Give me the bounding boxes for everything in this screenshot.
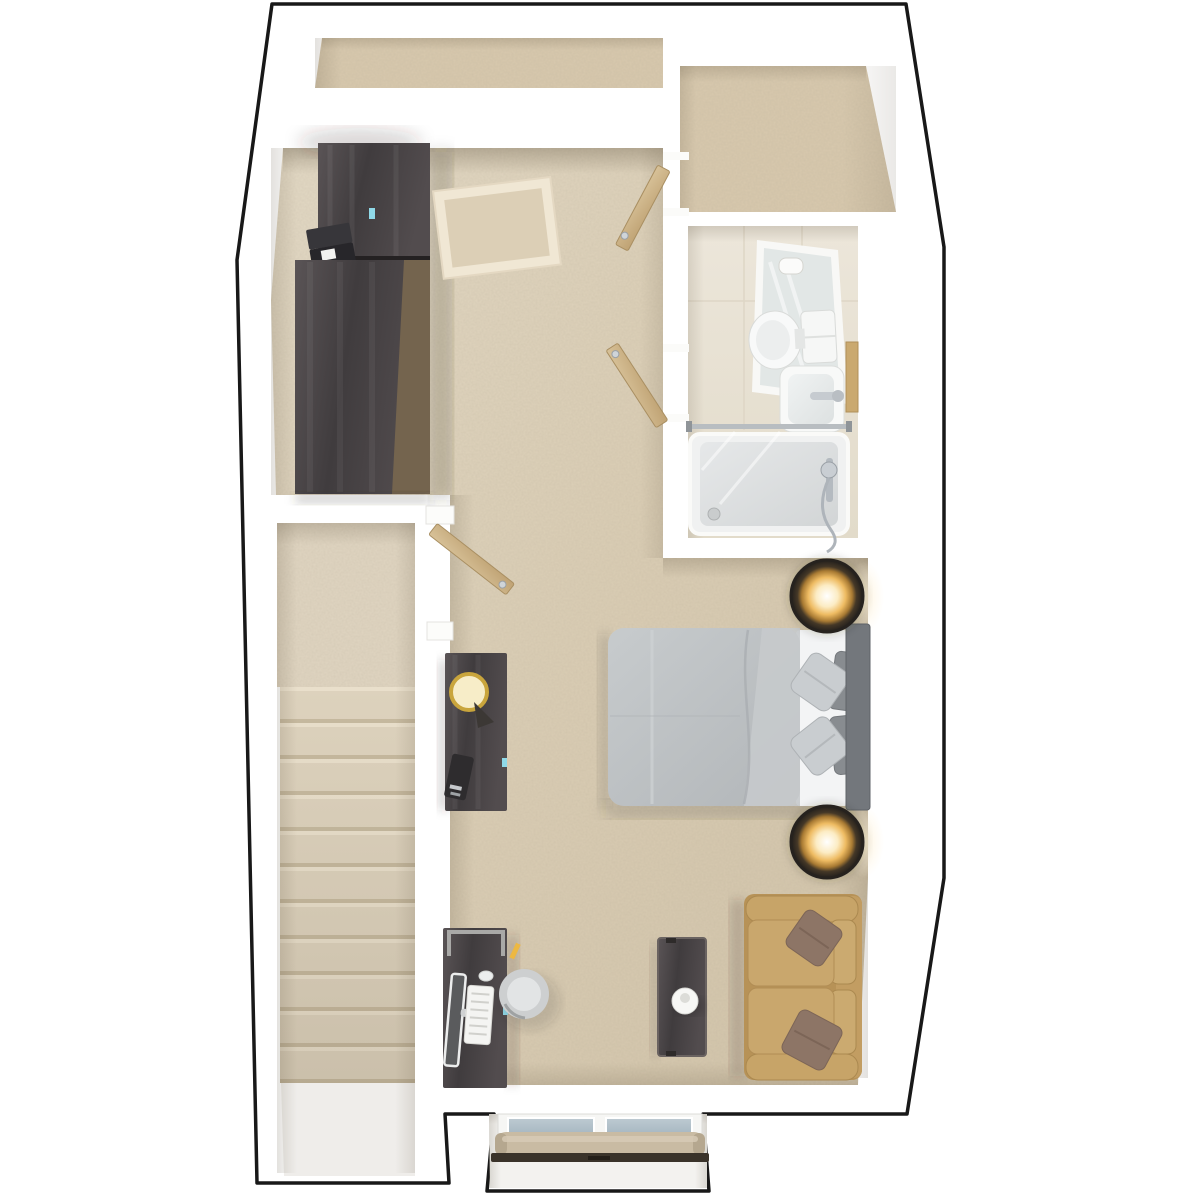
floor-plan-stage	[0, 0, 1200, 1200]
shower-screen	[686, 424, 852, 429]
rail-bracket	[588, 1156, 610, 1160]
loveseat-sofa	[730, 894, 862, 1080]
shower-drain	[708, 508, 720, 520]
roller-curtain	[495, 1132, 705, 1156]
wardrobe-area	[295, 128, 452, 504]
stair-lower-landing	[281, 1083, 415, 1176]
console-handle	[666, 938, 676, 943]
stair-top-shadow	[277, 523, 415, 545]
round-nightstand-bottom	[789, 804, 865, 880]
stair-bottom-shading	[280, 687, 415, 1083]
chair-cushion	[507, 977, 541, 1011]
floor-plan-svg	[0, 0, 1200, 1200]
tag-accent	[502, 758, 507, 767]
console-handle	[666, 1051, 676, 1056]
table-lamp-gold	[451, 674, 487, 710]
curtain-highlight	[502, 1136, 698, 1142]
toilet-roll-holder	[779, 258, 803, 274]
door-jamb	[426, 506, 454, 524]
towel-rail	[846, 342, 858, 412]
stair-upper-landing	[277, 523, 415, 687]
sofa-shadow	[730, 900, 746, 1076]
vase-opening	[680, 993, 690, 1003]
stair-right-shadow	[395, 523, 415, 1173]
tag-accent	[369, 208, 375, 219]
console-table-group	[650, 938, 706, 1056]
screen-bracket	[686, 421, 692, 432]
window-bay	[491, 1114, 709, 1162]
round-nightstand-top	[789, 558, 865, 634]
shower	[686, 421, 852, 552]
shower-valve-knob	[821, 462, 837, 478]
bedside-cabinet-group	[438, 653, 507, 811]
door-jamb	[663, 208, 689, 216]
bed-headboard	[846, 624, 870, 810]
door-jamb	[427, 622, 453, 640]
screen-bracket	[846, 421, 852, 432]
door-jamb	[663, 152, 689, 160]
mouse	[479, 971, 493, 981]
faucet-base	[832, 390, 844, 402]
wash-basin	[780, 366, 844, 432]
dresser-shadow	[295, 492, 430, 504]
door-jamb	[663, 344, 689, 352]
area-rug	[433, 177, 561, 279]
keyboard	[464, 985, 494, 1045]
stair-left-shadow	[277, 523, 297, 1173]
